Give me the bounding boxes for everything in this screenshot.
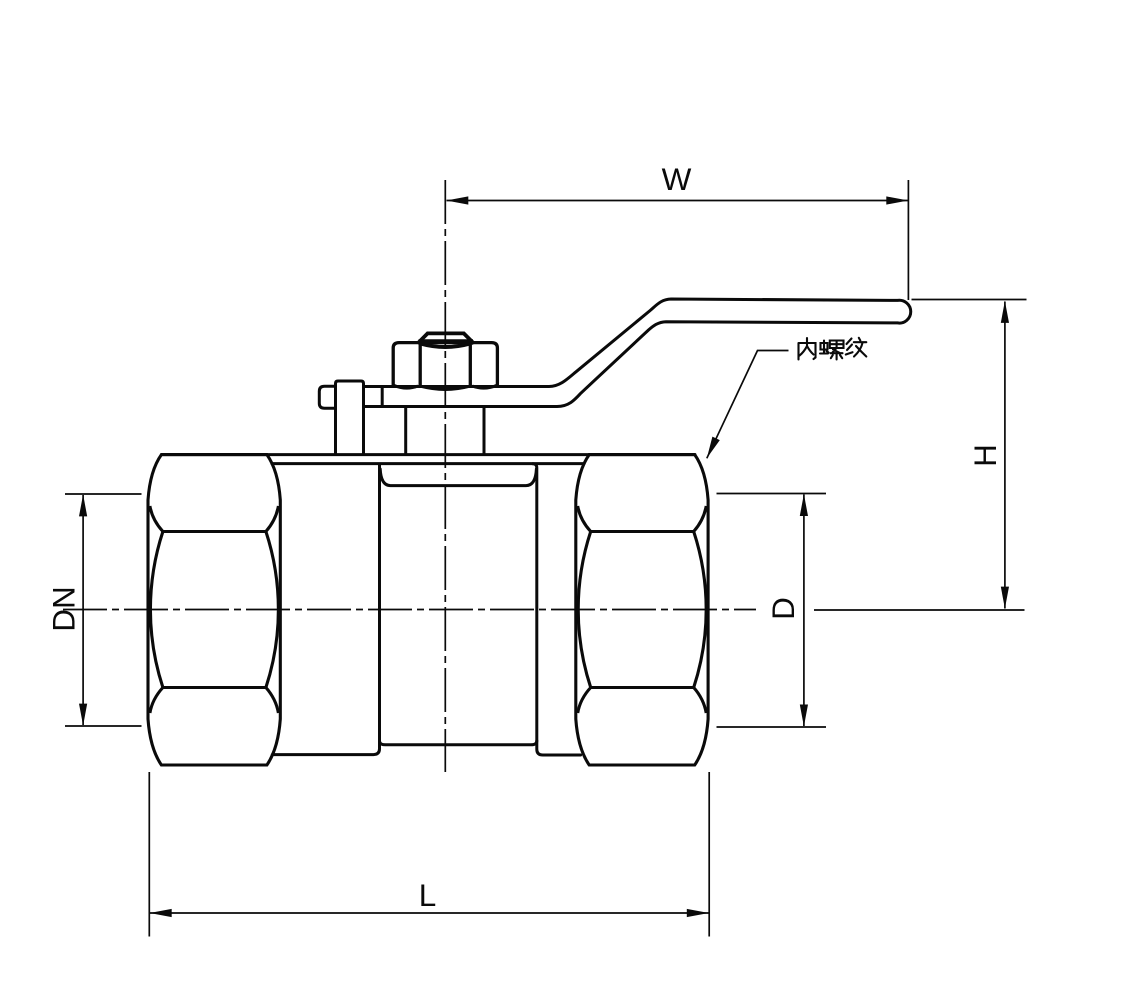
svg-text:DN: DN [46,586,82,632]
svg-text:W: W [662,161,692,197]
svg-text:H: H [967,444,1003,467]
svg-text:D: D [765,597,801,620]
svg-text:L: L [419,877,437,913]
